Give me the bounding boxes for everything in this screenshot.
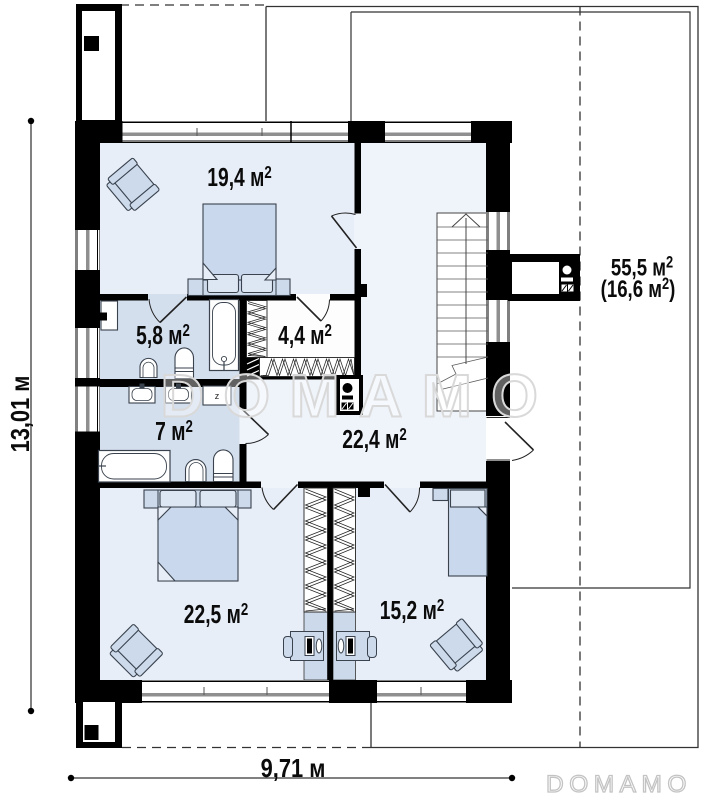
svg-text:22,4 м2: 22,4 м2: [342, 424, 407, 454]
svg-text:15,2 м2: 15,2 м2: [380, 595, 445, 625]
svg-text:9,71 м: 9,71 м: [261, 754, 326, 783]
svg-text:5,8 м2: 5,8 м2: [136, 320, 190, 350]
svg-text:DOMAMO: DOMAMO: [161, 363, 558, 430]
svg-text:DOMAMO: DOMAMO: [546, 771, 692, 798]
svg-text:22,5 м2: 22,5 м2: [184, 599, 249, 629]
svg-text:19,4 м2: 19,4 м2: [207, 162, 272, 192]
svg-text:4,4 м2: 4,4 м2: [278, 320, 332, 350]
svg-text:13,01 м: 13,01 м: [6, 376, 35, 453]
